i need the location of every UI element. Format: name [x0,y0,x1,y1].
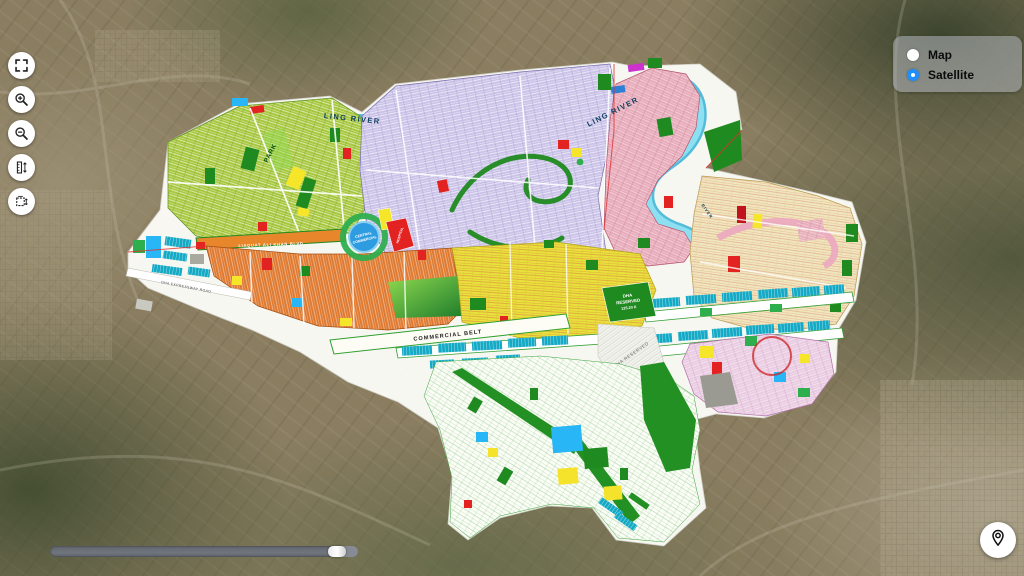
map-radio-label: Map [928,48,952,62]
zoom-out-button[interactable] [8,120,35,147]
opacity-slider-thumb[interactable] [328,546,346,557]
location-pin-icon [988,528,1008,553]
satellite-radio[interactable] [907,69,919,81]
measure-area-button[interactable] [8,188,35,215]
ruler-icon [14,160,29,175]
measure-distance-button[interactable] [8,154,35,181]
fullscreen-button[interactable] [8,52,35,79]
zoom-in-icon [14,92,29,107]
central-commercial: CENTRAL COMMERCIAL [343,216,385,258]
satellite-radio-label: Satellite [928,68,974,82]
layer-option-map[interactable]: Map [907,45,1022,65]
map-radio[interactable] [907,49,919,61]
overlay-opacity-slider[interactable] [50,546,358,557]
zoom-out-icon [14,126,29,141]
layer-switcher-panel: Map Satellite [893,36,1022,92]
dha-reserved-green: DHA RESERVED 125.20 K [602,282,656,322]
fullscreen-icon [14,58,29,73]
master-plan-overlay: CENTRAL COMMERCIAL HOSPITAL COMMERCIAL B… [0,0,1024,576]
zoom-in-button[interactable] [8,86,35,113]
sector-bottom [424,356,700,542]
layer-option-satellite[interactable]: Satellite [907,65,1022,85]
area-measure-icon [14,194,29,209]
map-canvas[interactable]: CENTRAL COMMERCIAL HOSPITAL COMMERCIAL B… [0,0,1024,576]
locate-button[interactable] [980,522,1016,558]
